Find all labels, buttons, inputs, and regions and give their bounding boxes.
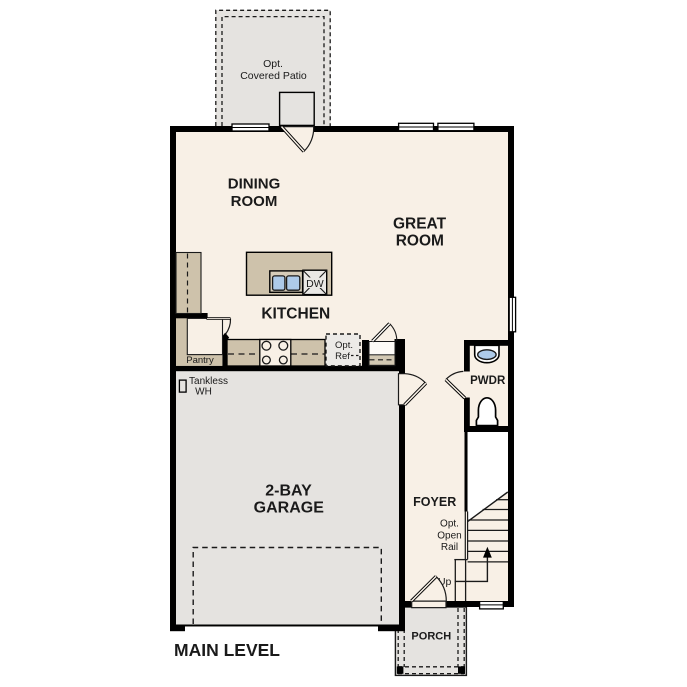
svg-text:Tankless: Tankless [189, 376, 228, 387]
svg-text:Opt.: Opt. [263, 58, 283, 70]
svg-text:GARAGE: GARAGE [254, 500, 325, 517]
svg-text:PORCH: PORCH [411, 630, 451, 642]
svg-text:ROOM: ROOM [231, 193, 278, 210]
svg-text:Opt.: Opt. [335, 340, 353, 351]
svg-text:DINING: DINING [228, 176, 281, 193]
svg-text:Open: Open [437, 531, 461, 542]
svg-text:Ref: Ref [335, 351, 350, 362]
svg-text:FOYER: FOYER [413, 495, 456, 509]
svg-text:PWDR: PWDR [470, 375, 506, 387]
svg-text:WH: WH [195, 387, 212, 398]
svg-text:ROOM: ROOM [396, 233, 444, 250]
svg-text:KITCHEN: KITCHEN [261, 306, 330, 323]
svg-text:Opt.: Opt. [440, 519, 459, 530]
svg-text:MAIN LEVEL: MAIN LEVEL [174, 640, 280, 660]
svg-text:2-BAY: 2-BAY [265, 482, 312, 499]
svg-text:Rail: Rail [441, 542, 458, 553]
svg-text:GREAT: GREAT [393, 215, 447, 232]
svg-text:Covered Patio: Covered Patio [240, 70, 307, 82]
svg-text:Pantry: Pantry [186, 355, 214, 366]
svg-text:DW: DW [306, 278, 324, 290]
